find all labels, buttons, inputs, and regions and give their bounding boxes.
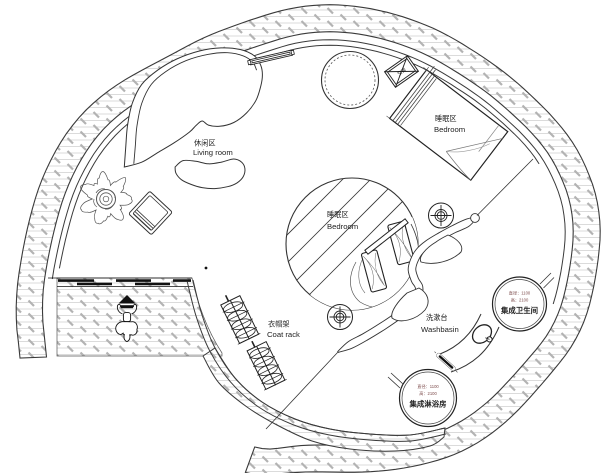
svg-text:Coat rack: Coat rack (267, 330, 300, 339)
svg-text:Living room: Living room (193, 148, 233, 157)
svg-text:洗漱台: 洗漱台 (426, 313, 448, 322)
svg-text:Bedroom: Bedroom (327, 222, 358, 231)
svg-text:睡眠区: 睡眠区 (435, 114, 457, 123)
svg-text:睡眠区: 睡眠区 (327, 210, 349, 219)
svg-text:直径：1100: 直径：1100 (509, 290, 531, 296)
svg-text:休闲区: 休闲区 (194, 139, 216, 148)
svg-text:Bedroom: Bedroom (434, 125, 465, 134)
svg-text:直径：1100: 直径：1100 (417, 383, 439, 389)
svg-text:集成淋浴房: 集成淋浴房 (409, 400, 447, 409)
svg-text:高：2100: 高：2100 (419, 390, 437, 396)
svg-text:高：2100: 高：2100 (511, 297, 529, 303)
svg-text:集成卫生间: 集成卫生间 (500, 306, 538, 315)
svg-text:Washbasin: Washbasin (421, 325, 459, 334)
svg-text:衣帽架: 衣帽架 (268, 320, 290, 329)
